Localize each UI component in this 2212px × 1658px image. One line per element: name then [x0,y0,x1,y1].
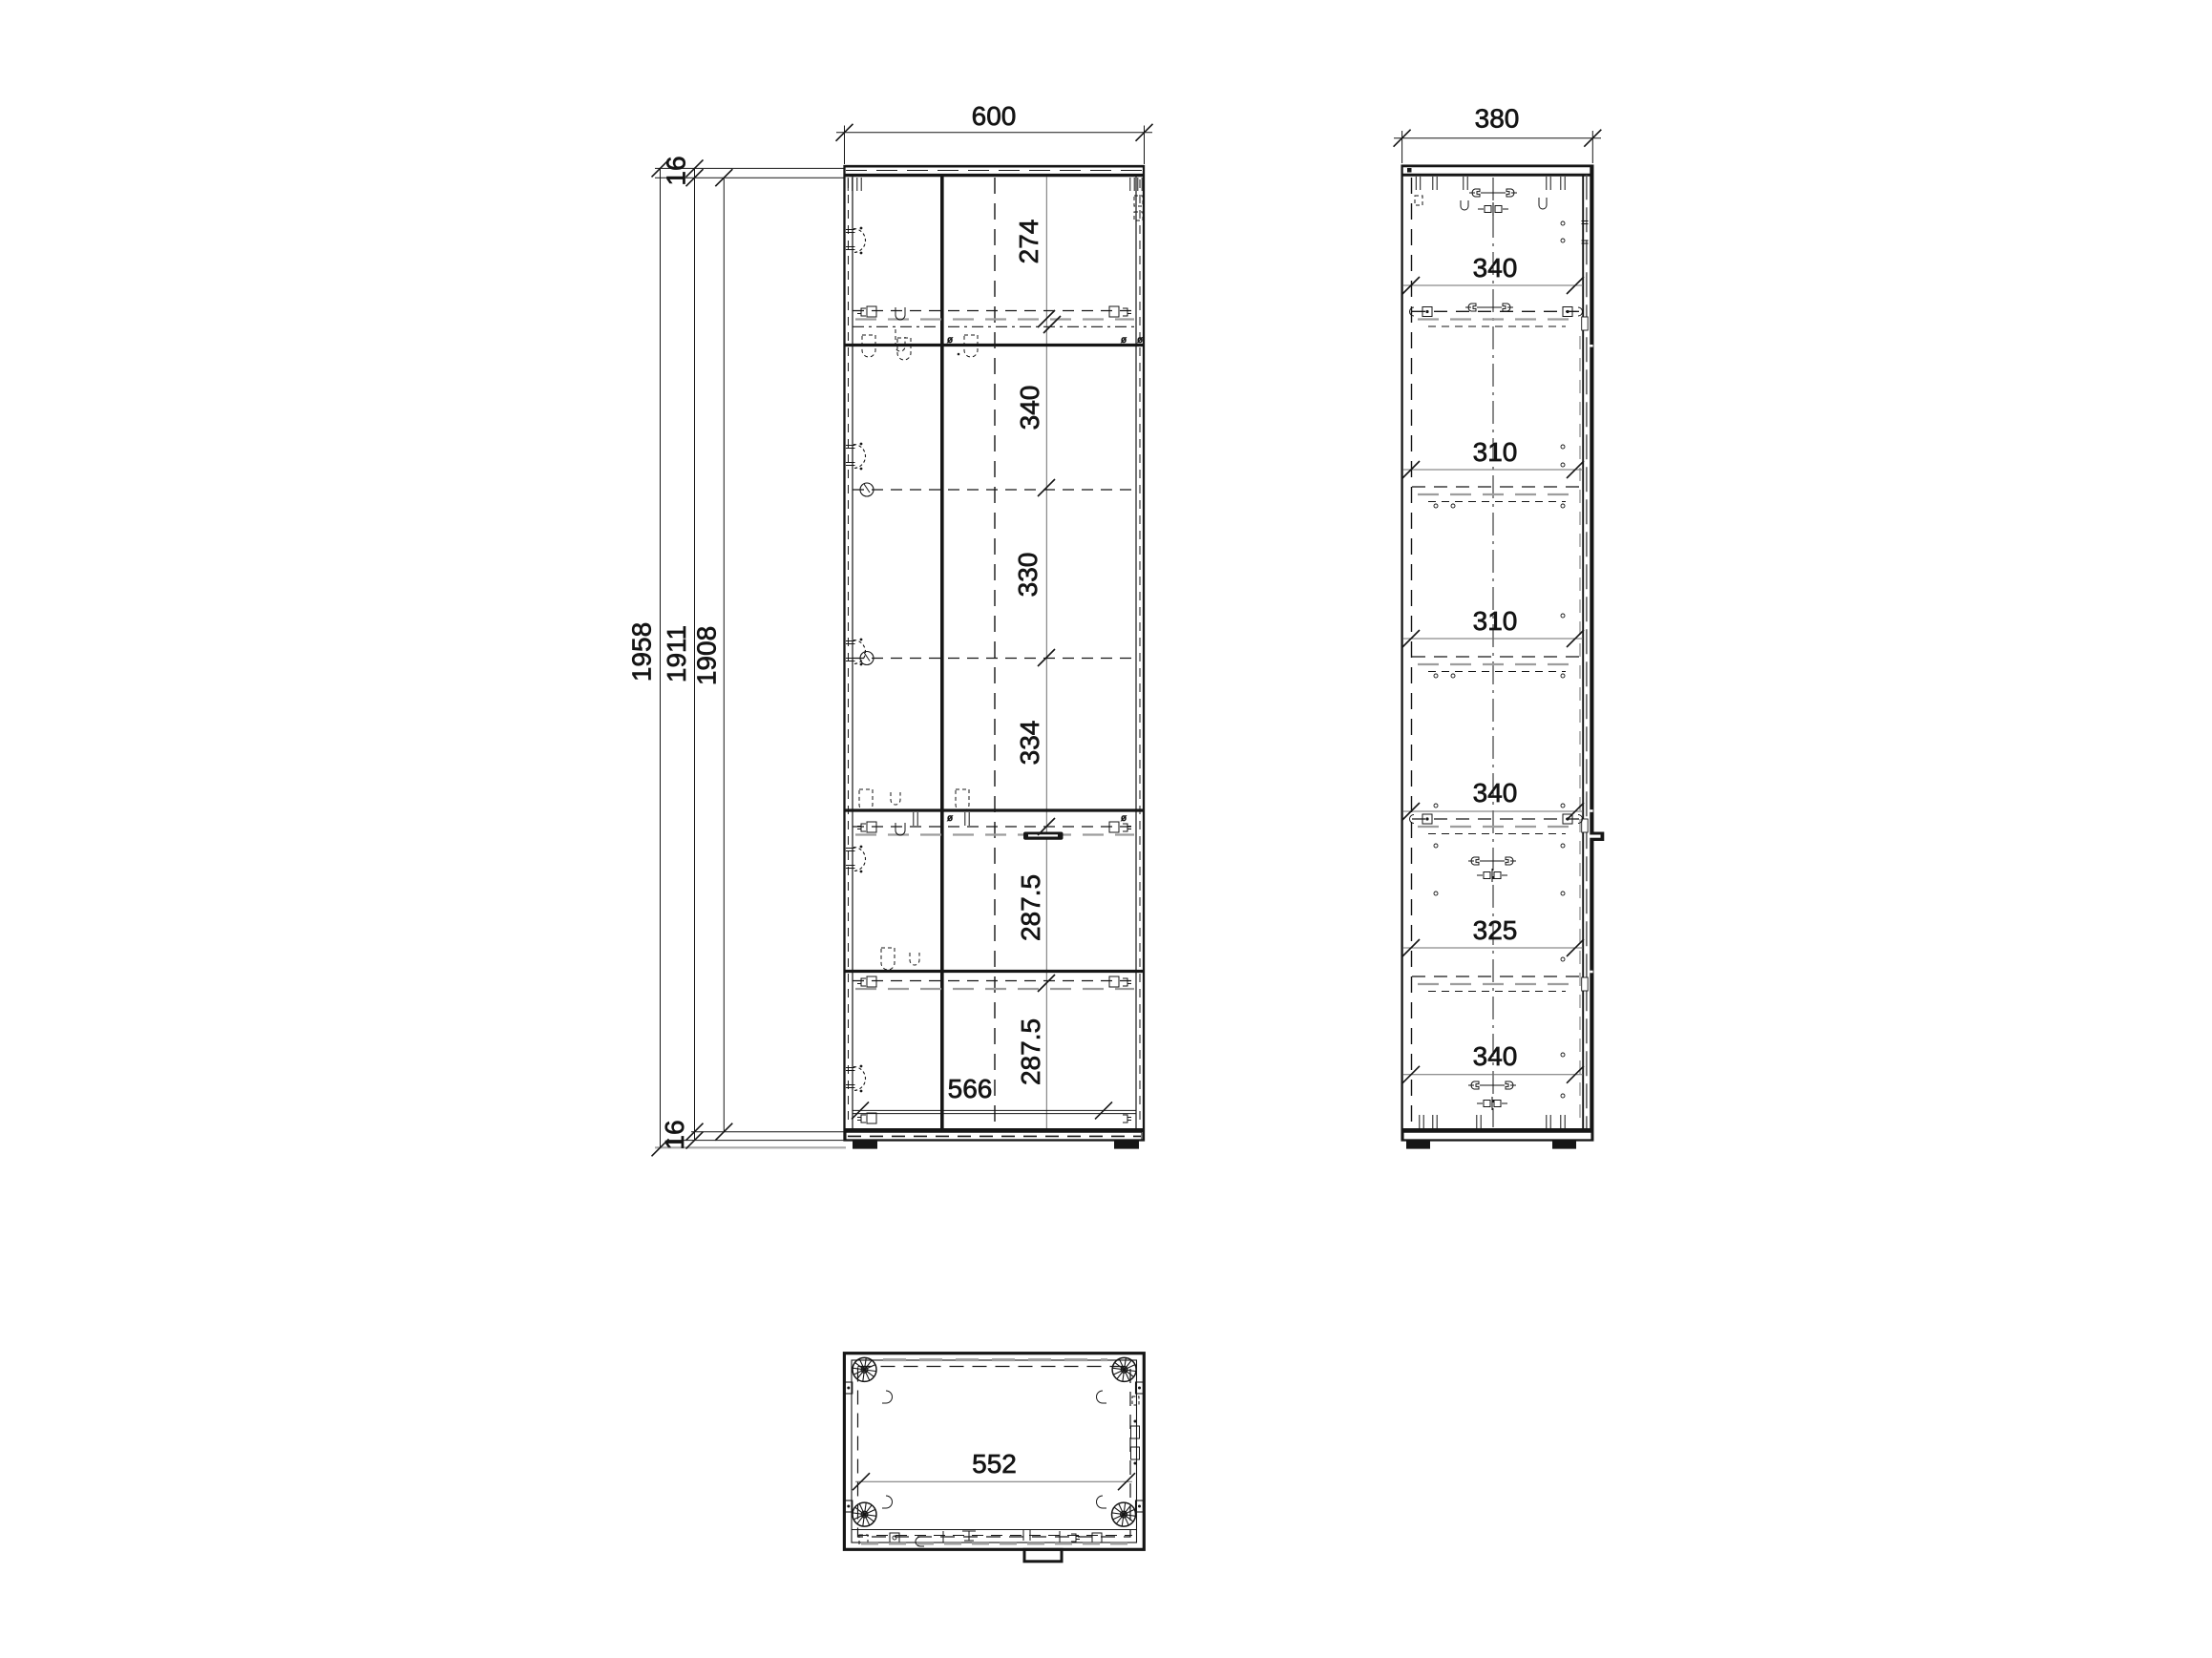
svg-text:ø: ø [1121,335,1127,346]
svg-text:340: 340 [1473,1041,1518,1071]
svg-text:380: 380 [1475,104,1520,134]
svg-text:340: 340 [1473,253,1518,283]
svg-text:310: 310 [1473,606,1518,636]
svg-text:ø: ø [947,335,953,346]
svg-text:ø: ø [1137,335,1143,346]
svg-text:325: 325 [1473,915,1518,945]
svg-text:274: 274 [1014,220,1043,264]
svg-text:552: 552 [972,1449,1017,1479]
svg-text:16: 16 [662,156,691,185]
svg-text:1958: 1958 [627,622,657,682]
svg-text:16: 16 [660,1120,689,1149]
svg-text:1908: 1908 [692,626,722,685]
svg-text:287.5: 287.5 [1016,874,1045,941]
svg-text:334: 334 [1015,721,1044,766]
svg-text:ø: ø [1121,813,1127,824]
svg-text:287.5: 287.5 [1016,1018,1045,1085]
svg-text:1911: 1911 [662,625,691,682]
svg-text:310: 310 [1473,437,1518,467]
svg-text:340: 340 [1473,778,1518,808]
svg-text:330: 330 [1013,553,1043,598]
svg-text:600: 600 [972,101,1017,131]
svg-text:566: 566 [948,1074,993,1103]
svg-text:340: 340 [1015,386,1044,430]
svg-text:ø: ø [947,813,953,824]
